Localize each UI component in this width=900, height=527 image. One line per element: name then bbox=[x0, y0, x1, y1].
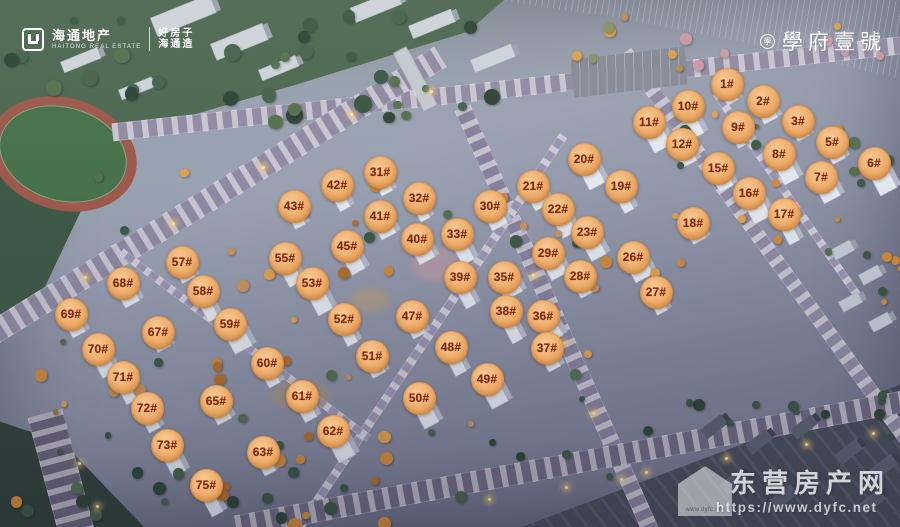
badge-65: 65# bbox=[200, 385, 233, 418]
project-logo: 學 學府壹號 bbox=[760, 26, 886, 56]
badge-57: 57# bbox=[166, 246, 199, 279]
badge-47: 47# bbox=[396, 300, 429, 333]
badge-75: 75# bbox=[190, 469, 223, 502]
badge-9: 9# bbox=[722, 111, 755, 144]
badge-38: 38# bbox=[490, 295, 523, 328]
site-watermark: www.dyfc.net 东营房产网 https://www.dyfc.net bbox=[660, 455, 900, 527]
badge-67: 67# bbox=[142, 316, 175, 349]
badge-59: 59# bbox=[214, 308, 247, 341]
badge-32: 32# bbox=[403, 182, 436, 215]
badge-37: 37# bbox=[531, 332, 564, 365]
badge-53: 53# bbox=[296, 267, 329, 300]
badge-69: 69# bbox=[55, 298, 88, 331]
badge-63: 63# bbox=[247, 436, 280, 469]
badge-60: 60# bbox=[251, 347, 284, 380]
badge-62: 62# bbox=[317, 415, 350, 448]
badge-39: 39# bbox=[444, 261, 477, 294]
badge-8: 8# bbox=[763, 138, 796, 171]
badge-28: 28# bbox=[564, 260, 597, 293]
badge-51: 51# bbox=[356, 340, 389, 373]
badge-23: 23# bbox=[571, 216, 604, 249]
developer-slogan-line2: 海通造 bbox=[158, 39, 194, 50]
developer-slogan-line1: 好房子 bbox=[158, 28, 194, 39]
badge-19: 19# bbox=[605, 170, 638, 203]
project-name: 學府壹號 bbox=[782, 26, 886, 56]
badge-3: 3# bbox=[782, 105, 815, 138]
badge-50: 50# bbox=[403, 382, 436, 415]
badge-43: 43# bbox=[278, 190, 311, 223]
developer-logo-icon bbox=[22, 28, 44, 51]
badge-31: 31# bbox=[364, 156, 397, 189]
badge-42: 42# bbox=[321, 169, 354, 202]
badge-2: 2# bbox=[747, 85, 780, 118]
badge-72: 72# bbox=[131, 392, 164, 425]
badge-22: 22# bbox=[542, 193, 575, 226]
badge-36: 36# bbox=[527, 300, 560, 333]
badge-45: 45# bbox=[331, 230, 364, 263]
badge-48: 48# bbox=[435, 331, 468, 364]
badge-7: 7# bbox=[805, 161, 838, 194]
badge-17: 17# bbox=[768, 198, 801, 231]
badge-27: 27# bbox=[640, 276, 673, 309]
badge-15: 15# bbox=[702, 152, 735, 185]
badge-21: 21# bbox=[517, 170, 550, 203]
badge-30: 30# bbox=[474, 190, 507, 223]
badge-26: 26# bbox=[617, 241, 650, 274]
badge-35: 35# bbox=[488, 261, 521, 294]
badge-10: 10# bbox=[672, 90, 705, 123]
badge-41: 41# bbox=[364, 200, 397, 233]
badge-68: 68# bbox=[107, 267, 140, 300]
badge-55: 55# bbox=[269, 242, 302, 275]
badge-40: 40# bbox=[401, 223, 434, 256]
badge-58: 58# bbox=[187, 275, 220, 308]
badge-12: 12# bbox=[666, 128, 699, 161]
badge-1: 1# bbox=[711, 68, 744, 101]
badge-18: 18# bbox=[677, 207, 710, 240]
badge-5: 5# bbox=[816, 126, 849, 159]
badge-20: 20# bbox=[568, 143, 601, 176]
badge-16: 16# bbox=[733, 177, 766, 210]
badge-29: 29# bbox=[532, 237, 565, 270]
badge-73: 73# bbox=[151, 429, 184, 462]
badge-71: 71# bbox=[107, 361, 140, 394]
building-badges-layer: 1#2#3#5#6#7#8#9#10#11#12#15#16#17#18#19#… bbox=[0, 0, 900, 527]
badge-61: 61# bbox=[286, 380, 319, 413]
badge-70: 70# bbox=[82, 333, 115, 366]
logo-divider bbox=[149, 27, 150, 51]
project-seal-icon: 學 bbox=[760, 34, 775, 49]
badge-52: 52# bbox=[328, 303, 361, 336]
master-plan-aerial-rendering: 1#2#3#5#6#7#8#9#10#11#12#15#16#17#18#19#… bbox=[0, 0, 900, 527]
developer-name: 海通地产 bbox=[52, 29, 141, 42]
developer-name-en: HAITONG REAL ESTATE bbox=[52, 44, 141, 50]
developer-logo: 海通地产 HAITONG REAL ESTATE 好房子 海通造 bbox=[22, 27, 194, 51]
badge-33: 33# bbox=[441, 218, 474, 251]
badge-11: 11# bbox=[633, 106, 666, 139]
watermark-url: https://www.dyfc.net bbox=[716, 500, 878, 515]
badge-6: 6# bbox=[858, 147, 891, 180]
watermark-site-name: 东营房产网 bbox=[730, 463, 890, 500]
badge-49: 49# bbox=[471, 363, 504, 396]
